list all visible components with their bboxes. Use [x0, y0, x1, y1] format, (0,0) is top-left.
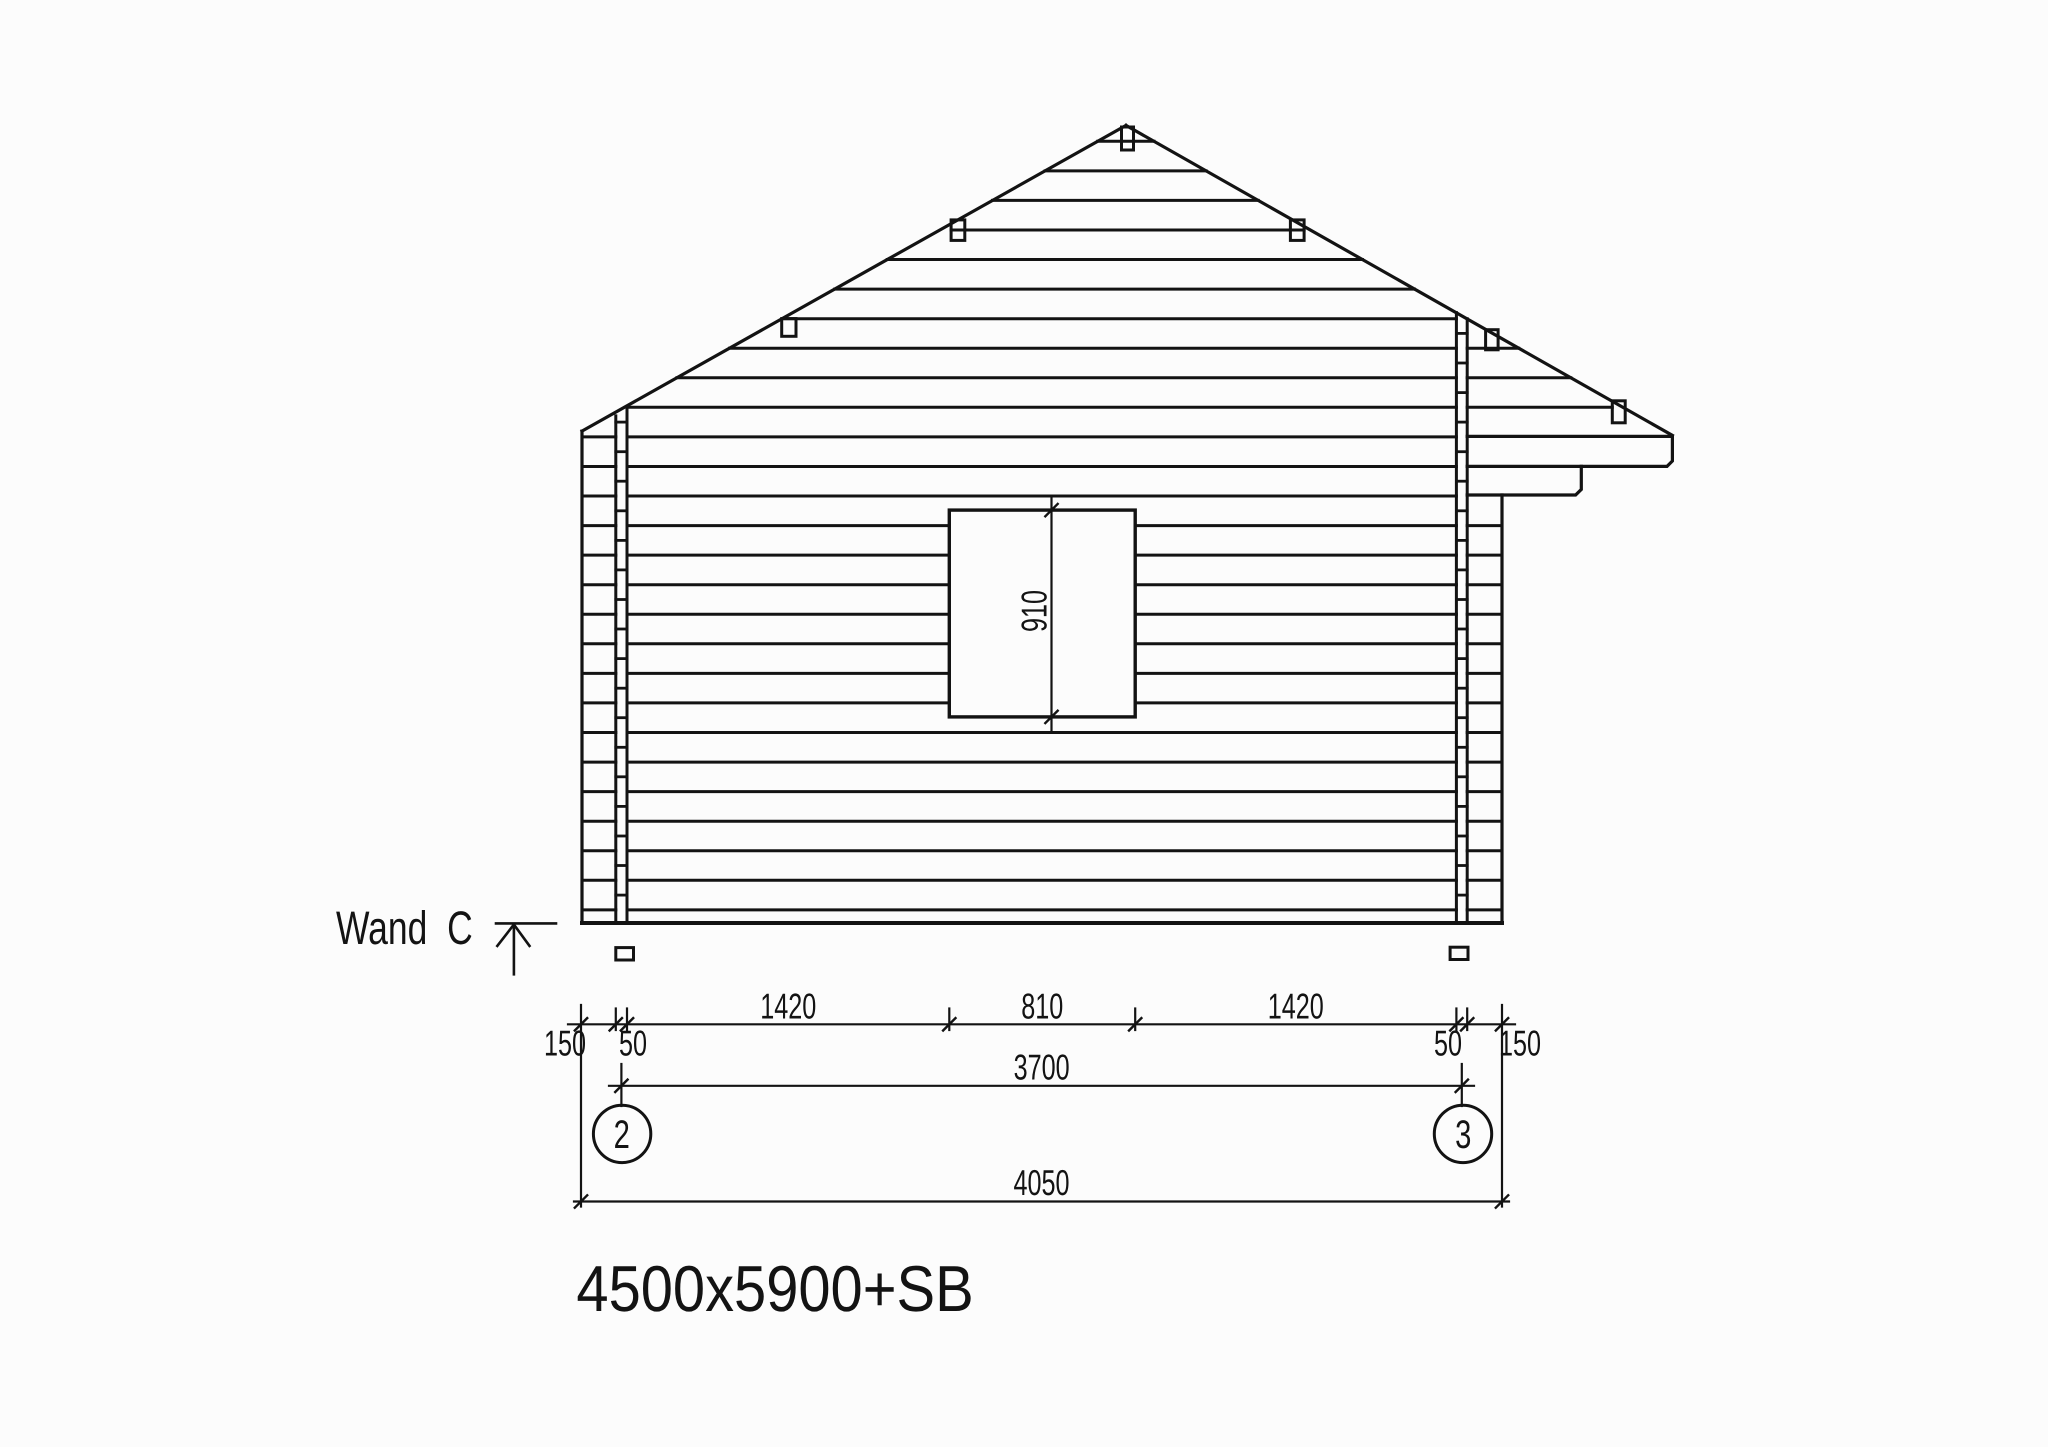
svg-text:1420: 1420 — [1268, 986, 1324, 1027]
svg-text:50: 50 — [619, 1023, 647, 1064]
svg-text:2: 2 — [614, 1113, 630, 1157]
svg-text:3: 3 — [1455, 1113, 1471, 1157]
svg-text:150: 150 — [1499, 1023, 1541, 1064]
svg-text:810: 810 — [1021, 986, 1063, 1027]
svg-text:4500x5900+SB: 4500x5900+SB — [576, 1252, 973, 1325]
svg-text:50: 50 — [1434, 1023, 1462, 1064]
svg-text:Wand C: Wand C — [336, 901, 473, 954]
svg-text:910: 910 — [1014, 590, 1055, 632]
svg-text:1420: 1420 — [760, 986, 816, 1027]
svg-text:150: 150 — [544, 1023, 586, 1064]
svg-text:4050: 4050 — [1013, 1162, 1069, 1203]
svg-text:3700: 3700 — [1014, 1047, 1070, 1088]
